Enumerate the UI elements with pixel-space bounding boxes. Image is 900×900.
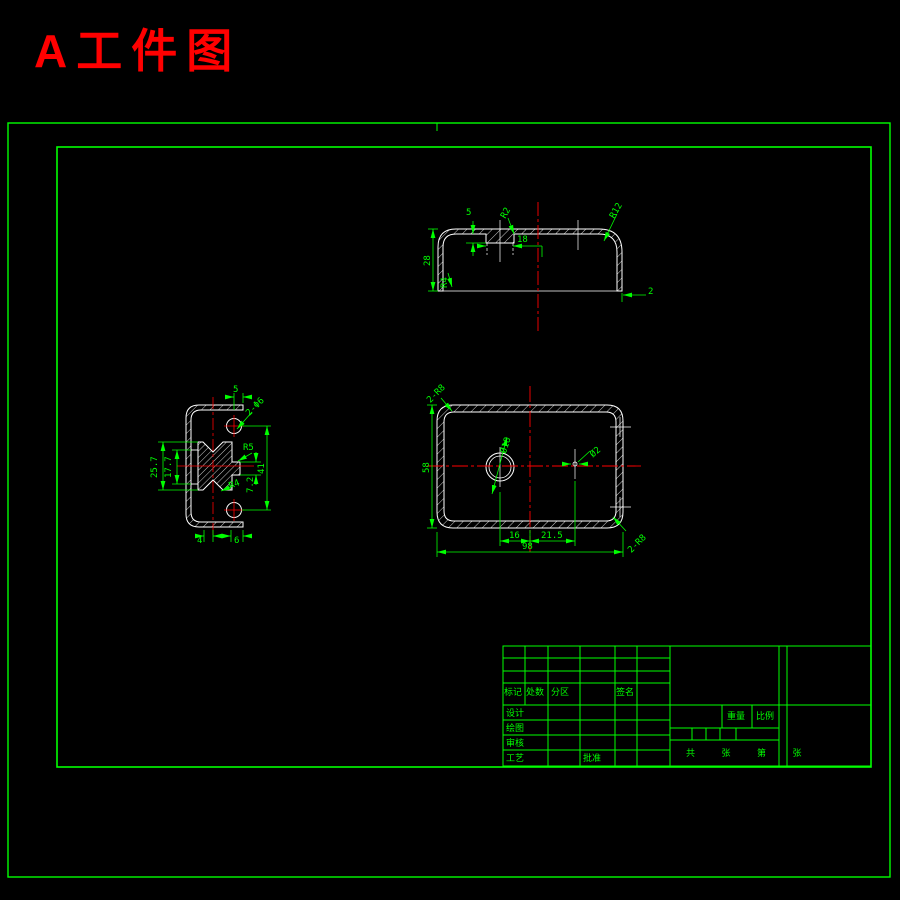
dim-98-label: 98 [522,543,533,552]
page-title: A工件图 [34,26,241,76]
titleblock-weight-label: 重量 [727,711,745,721]
dim-r5-label: R5 [243,444,254,453]
dim-r4-top-label: R4 [441,277,450,288]
titleblock-draw-label: 绘图 [506,723,524,733]
dim-16-label: 16 [509,532,520,541]
dim-17-7-label: 17.7 [165,456,174,478]
titleblock-count-label: 处数 [526,687,544,697]
dim-4-label: 4 [197,537,202,546]
dim-28-label: 28 [424,255,433,266]
sheet-border [8,123,890,877]
dim-58-label: 58 [423,462,432,473]
titleblock-process-label: 工艺 [506,753,524,763]
dim-5-top-view: 5 [466,209,471,218]
titleblock-zone-label: 分区 [551,687,569,697]
titleblock-sheet-label: 共 张 第 张 [686,748,814,758]
dim-41-label: 41 [258,463,267,474]
dim-2-label: 2 [648,288,653,297]
dim-18-label: 18 [517,236,528,245]
dim-25-7-label: 25.7 [151,456,160,478]
dim-6-label: 6 [234,537,239,546]
top-section-view [428,202,646,333]
titleblock-check-label: 审核 [506,738,524,748]
titleblock-sign-label: 签名 [616,687,634,697]
dim-7-2-label: 7.2 [247,477,256,493]
dim-21-5-label: 21.5 [541,532,563,541]
cad-drawing-canvas: A工件图 5 R2 18 R12 28 R4 2 5 2-Φ6 25.7 17.… [0,0,900,900]
titleblock-mark-label: 标记 [504,687,522,697]
titleblock-design-label: 设计 [506,708,524,718]
titleblock-approve-label: 批准 [583,753,601,763]
drawing-linework [0,0,900,900]
plan-view [427,386,641,557]
titleblock-scale-label: 比例 [756,711,774,721]
dim-5-side-view: 5 [233,386,238,395]
